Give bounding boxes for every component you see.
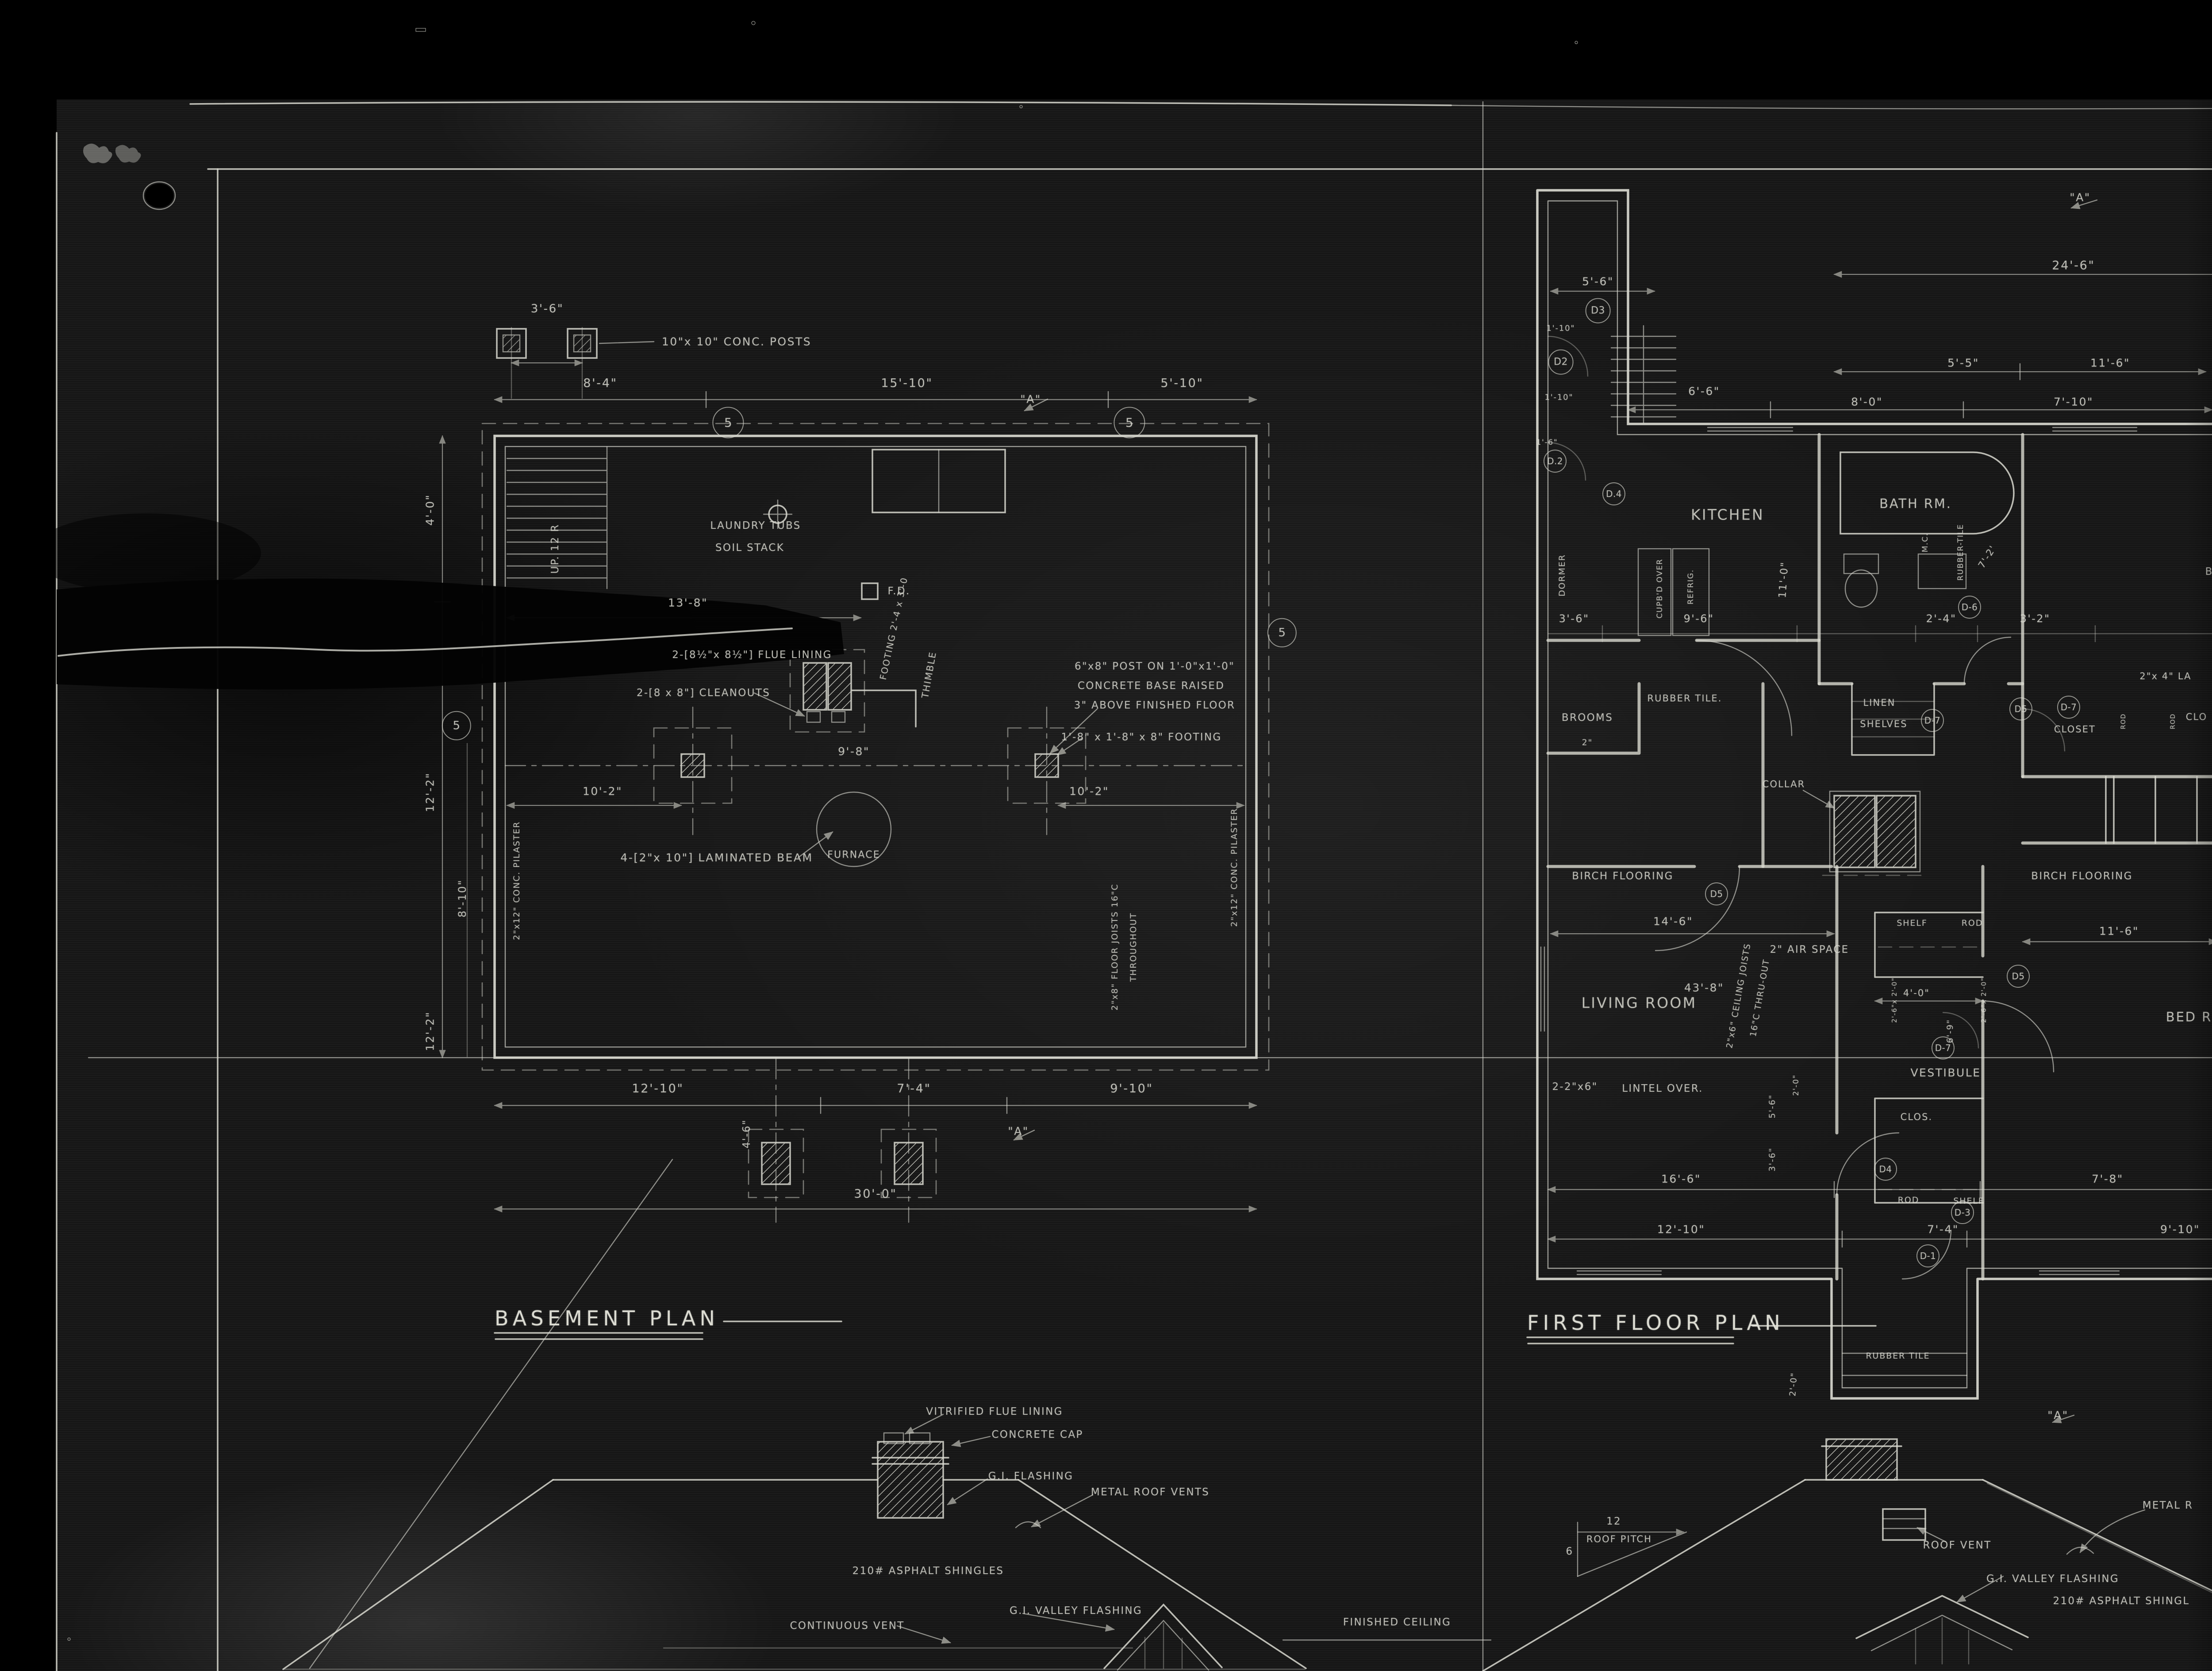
plan-annotation: 3'-2" bbox=[2020, 612, 2051, 625]
plan-annotation: 7'-4" bbox=[897, 1082, 931, 1096]
plan-annotation: D-1 bbox=[1916, 1244, 1939, 1267]
annotation-layer: 3'-6"10"x 10" CONC. POSTS8'-4"15'-10"5'-… bbox=[0, 0, 2212, 1671]
plan-annotation: 12 bbox=[1606, 1516, 1621, 1527]
plan-annotation: SOIL STACK bbox=[715, 542, 784, 554]
plan-annotation: CLOS. bbox=[1901, 1112, 1933, 1122]
plan-annotation: 9'-10" bbox=[1110, 1082, 1153, 1096]
plan-annotation: UP. 12 R bbox=[549, 524, 561, 574]
plan-annotation: 10"x 10" CONC. POSTS bbox=[662, 335, 811, 348]
plan-annotation: ROOF PITCH bbox=[1586, 1534, 1652, 1544]
plan-annotation: RUBBER TILE bbox=[1866, 1351, 1930, 1361]
blueprint-scan: 3'-6"10"x 10" CONC. POSTS8'-4"15'-10"5'-… bbox=[0, 0, 2212, 1671]
plan-annotation: 5'-5" bbox=[1947, 357, 1979, 370]
plan-annotation: "A" bbox=[2047, 1409, 2069, 1422]
plan-annotation: 5 bbox=[1114, 407, 1145, 438]
plan-annotation: D5 bbox=[2007, 965, 2030, 988]
plan-annotation: 7'-4" bbox=[1927, 1223, 1959, 1236]
plan-annotation: 7'-2' bbox=[1976, 543, 1998, 570]
plan-annotation: 2'-6"x 2'-0" bbox=[1890, 978, 1898, 1023]
plan-annotation: BIRCH FLOORING bbox=[2031, 870, 2133, 882]
plan-annotation: DORMER bbox=[1557, 554, 1567, 597]
plan-annotation: 7'-8" bbox=[2092, 1173, 2124, 1186]
plan-annotation: CONCRETE BASE RAISED bbox=[1078, 680, 1225, 692]
plan-annotation: 5'-6" bbox=[1582, 275, 1614, 288]
scan-fold-shadow bbox=[2185, 0, 2212, 1671]
plan-annotation: D.2 bbox=[1544, 450, 1567, 473]
plan-annotation: D-7 bbox=[2057, 696, 2080, 719]
plan-annotation: 13'-8" bbox=[668, 597, 708, 609]
plan-annotation: D3 bbox=[1586, 298, 1611, 323]
plan-annotation: "A" bbox=[1008, 1125, 1029, 1138]
plan-annotation: KITCHEN bbox=[1691, 506, 1764, 524]
plan-annotation: 2" bbox=[1582, 738, 1593, 747]
plan-annotation: 2'-6"x 2'-0" bbox=[1980, 978, 1988, 1023]
plan-annotation: 6'-9" bbox=[1945, 1019, 1955, 1043]
basement-plan-title: BASEMENT PLAN bbox=[495, 1306, 719, 1330]
plan-annotation: 16"C THRU-OUT bbox=[1748, 959, 1772, 1038]
plan-annotation: ROD bbox=[2170, 713, 2177, 729]
plan-annotation: 2'-4" bbox=[1926, 612, 1957, 625]
plan-annotation: 12'-10" bbox=[632, 1082, 684, 1096]
plan-annotation: 10'-2" bbox=[583, 785, 622, 798]
plan-annotation: 5'-10" bbox=[1160, 377, 1203, 390]
plan-annotation: LAUNDRY TUBS bbox=[710, 520, 801, 531]
plan-annotation: 30'-0" bbox=[854, 1187, 897, 1201]
plan-annotation: 4-[2"x 10"] LAMINATED BEAM bbox=[620, 851, 813, 864]
plan-annotation: 24'-6" bbox=[2052, 259, 2095, 273]
plan-annotation: G.I. VALLEY FLASHING bbox=[1010, 1605, 1142, 1617]
plan-annotation: LINEN bbox=[1863, 697, 1895, 708]
plan-annotation: 1'-8" x 1'-8" x 8" FOOTING bbox=[1061, 732, 1221, 743]
plan-annotation: THIMBLE bbox=[920, 651, 938, 699]
plan-annotation: 11'-0" bbox=[1777, 561, 1791, 599]
plan-annotation: 2'-0" bbox=[1792, 1074, 1801, 1096]
plan-annotation: 2"x 4" LA bbox=[2139, 671, 2191, 681]
plan-annotation: 5'-6" bbox=[1767, 1094, 1777, 1119]
plan-annotation: 5 bbox=[1267, 618, 1297, 647]
plan-annotation: D2 bbox=[1548, 350, 1574, 375]
plan-annotation: 43'-8" bbox=[1684, 982, 1724, 994]
plan-annotation: 1'-10" bbox=[1545, 393, 1574, 402]
plan-annotation: ROOF VENT bbox=[1923, 1540, 1992, 1551]
plan-annotation: BIRCH FLOORING bbox=[1572, 870, 1674, 882]
plan-annotation: D-6 bbox=[1958, 596, 1981, 619]
plan-annotation: 12'-2" bbox=[424, 772, 437, 812]
plan-annotation: D5 bbox=[1705, 882, 1728, 905]
plan-annotation: VESTIBULE bbox=[1910, 1067, 1981, 1079]
plan-annotation: ROD bbox=[2120, 713, 2127, 729]
plan-annotation: 5 bbox=[712, 407, 744, 438]
plan-annotation: 3" ABOVE FINISHED FLOOR bbox=[1074, 700, 1236, 711]
plan-annotation: 15'-10" bbox=[881, 377, 933, 390]
plan-annotation: 16'-6" bbox=[1661, 1173, 1701, 1186]
plan-annotation: 11'-6" bbox=[2099, 925, 2139, 938]
plan-annotation: 2"x12" CONC. PILASTER bbox=[1229, 808, 1239, 927]
plan-annotation: CUPB'D OVER bbox=[1655, 558, 1664, 618]
plan-annotation: COLLAR bbox=[1763, 779, 1805, 789]
plan-annotation: 14'-6" bbox=[1653, 915, 1693, 928]
plan-annotation: 2"x12" CONC. PILASTER bbox=[512, 821, 522, 940]
plan-annotation: LINTEL OVER. bbox=[1622, 1083, 1703, 1094]
plan-annotation: REFRIG. bbox=[1686, 569, 1695, 604]
plan-annotation: 4'-0" bbox=[424, 494, 437, 526]
plan-annotation: 3'-6" bbox=[1559, 612, 1590, 625]
plan-annotation: M.C. bbox=[1921, 533, 1930, 552]
plan-annotation: 1'-10" bbox=[1547, 324, 1575, 333]
plan-annotation: 6"x8" POST ON 1'-0"x1'-0" bbox=[1075, 661, 1235, 672]
plan-annotation: RUBBER TILE. bbox=[1647, 693, 1722, 704]
plan-annotation: 3'-6" bbox=[531, 302, 564, 316]
plan-annotation: 9'-8" bbox=[838, 745, 870, 758]
plan-annotation: "A" bbox=[1020, 393, 1041, 406]
plan-annotation: 2'-0" bbox=[1788, 1372, 1799, 1397]
plan-annotation: 8'-0" bbox=[1851, 396, 1883, 408]
plan-annotation: 7'-10" bbox=[2054, 396, 2093, 408]
plan-annotation: D5 bbox=[2009, 697, 2032, 720]
plan-annotation: 4'-6" bbox=[741, 1119, 753, 1148]
plan-annotation: 1'-6" bbox=[1536, 438, 1558, 447]
plan-annotation: 3'-6" bbox=[1767, 1147, 1777, 1172]
plan-annotation: 4'-0" bbox=[1903, 988, 1930, 998]
plan-annotation: 8'-4" bbox=[583, 377, 617, 390]
plan-annotation: D.4 bbox=[1602, 482, 1625, 505]
plan-annotation: 6'-6" bbox=[1688, 385, 1720, 398]
plan-annotation: 2-2"x6" bbox=[1552, 1081, 1598, 1093]
plan-annotation: CONCRETE CAP bbox=[991, 1429, 1083, 1440]
plan-annotation: "A" bbox=[2070, 191, 2091, 204]
plan-annotation: G.I. FLASHING bbox=[988, 1471, 1073, 1482]
plan-annotation: D4 bbox=[1874, 1158, 1897, 1181]
plan-annotation: BROOMS bbox=[1562, 712, 1613, 724]
plan-annotation: 10'-2" bbox=[1069, 785, 1109, 798]
plan-annotation: SHELVES bbox=[1860, 719, 1907, 729]
plan-annotation: VITRIFIED FLUE LINING bbox=[926, 1406, 1063, 1417]
plan-annotation: THROUGHOUT bbox=[1129, 913, 1138, 982]
plan-annotation: CLOSET bbox=[2054, 724, 2096, 735]
plan-annotation: 2-[8 x 8"] CLEANOUTS bbox=[637, 687, 770, 699]
plan-annotation: 2-[8½"x 8½"] FLUE LINING bbox=[672, 649, 832, 661]
plan-annotation: RUBBER-TILE bbox=[1956, 524, 1965, 581]
plan-annotation: G.I. VALLEY FLASHING bbox=[1986, 1573, 2119, 1585]
plan-annotation: 210# ASPHALT SHINGL bbox=[2053, 1595, 2190, 1607]
plan-annotation: 11'-6" bbox=[2090, 357, 2130, 370]
first-floor-plan-title: FIRST FLOOR PLAN bbox=[1527, 1311, 1784, 1335]
plan-annotation: 2" AIR SPACE bbox=[1770, 944, 1849, 955]
plan-annotation: 12'-2" bbox=[424, 1011, 437, 1051]
plan-annotation: ROD bbox=[1898, 1195, 1920, 1205]
plan-annotation: 8'-10" bbox=[456, 879, 469, 918]
plan-annotation: 9'-6" bbox=[1684, 612, 1714, 625]
plan-annotation: FINISHED CEILING bbox=[1343, 1617, 1451, 1628]
plan-annotation: D-3 bbox=[1951, 1201, 1974, 1224]
plan-annotation: D-7 bbox=[1921, 709, 1944, 732]
plan-annotation: LIVING ROOM bbox=[1582, 994, 1697, 1012]
plan-annotation: 6 bbox=[1566, 1546, 1574, 1557]
plan-annotation: 210# ASPHALT SHINGLES bbox=[853, 1565, 1004, 1577]
plan-annotation: 2"x8" FLOOR JOISTS 16"C bbox=[1110, 884, 1120, 1011]
plan-annotation: ROD bbox=[1962, 918, 1983, 928]
plan-annotation: SHELF bbox=[1897, 918, 1927, 928]
plan-annotation: 5 bbox=[442, 711, 471, 740]
plan-annotation: METAL ROOF VENTS bbox=[1091, 1486, 1210, 1498]
plan-annotation: 12'-10" bbox=[1657, 1223, 1705, 1236]
plan-annotation: CONTINUOUS VENT bbox=[790, 1620, 904, 1632]
plan-annotation: FURNACE bbox=[827, 850, 880, 861]
plan-annotation: BATH RM. bbox=[1879, 496, 1952, 511]
